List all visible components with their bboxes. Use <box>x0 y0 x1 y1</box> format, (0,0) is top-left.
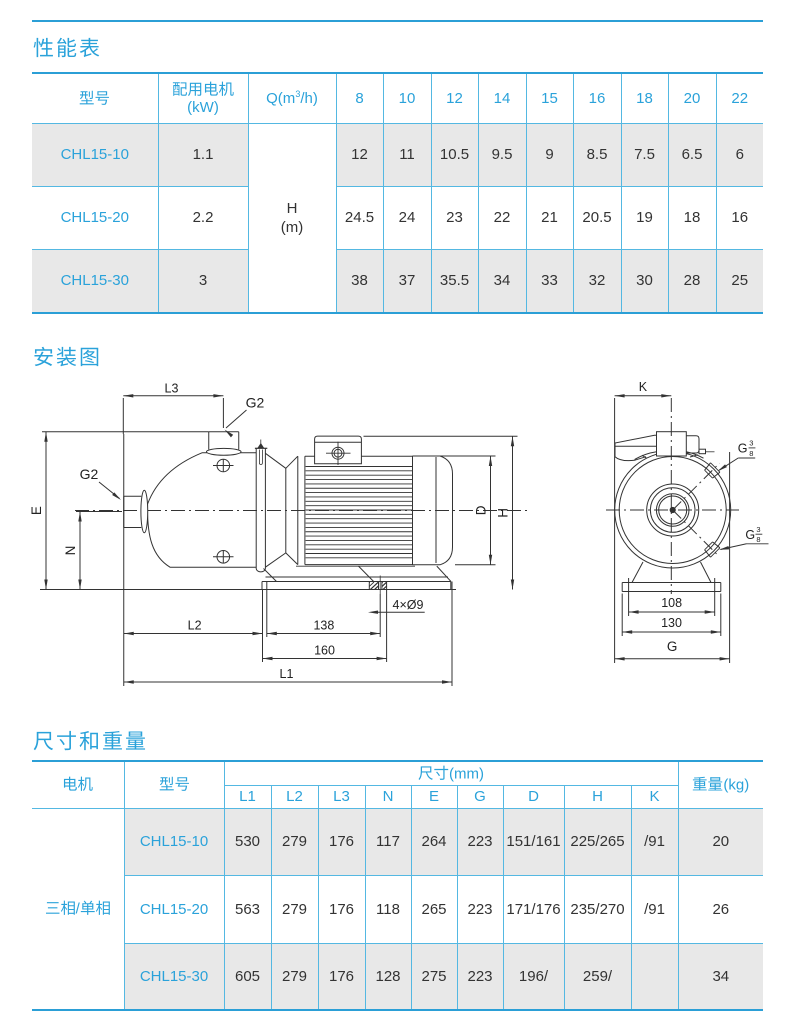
svg-text:G2: G2 <box>246 395 265 411</box>
svg-text:D: D <box>474 505 489 515</box>
svg-text:3: 3 <box>756 525 760 534</box>
svg-text:8: 8 <box>749 449 753 458</box>
svg-text:3: 3 <box>749 439 753 448</box>
svg-text:N: N <box>63 546 78 556</box>
svg-text:L1: L1 <box>280 667 294 681</box>
svg-text:160: 160 <box>314 644 335 658</box>
svg-text:G: G <box>738 441 748 455</box>
svg-text:L2: L2 <box>188 619 202 633</box>
svg-text:E: E <box>29 506 44 515</box>
svg-text:K: K <box>639 380 648 394</box>
svg-text:4×Ø9: 4×Ø9 <box>393 598 424 612</box>
svg-text:H: H <box>496 508 511 518</box>
svg-text:108: 108 <box>661 596 682 610</box>
svg-text:8: 8 <box>756 535 760 544</box>
svg-text:L3: L3 <box>165 382 179 396</box>
svg-text:G: G <box>745 528 755 542</box>
svg-text:130: 130 <box>661 616 682 630</box>
svg-text:138: 138 <box>313 619 334 633</box>
svg-text:G2: G2 <box>80 466 99 482</box>
svg-text:G: G <box>667 639 678 654</box>
